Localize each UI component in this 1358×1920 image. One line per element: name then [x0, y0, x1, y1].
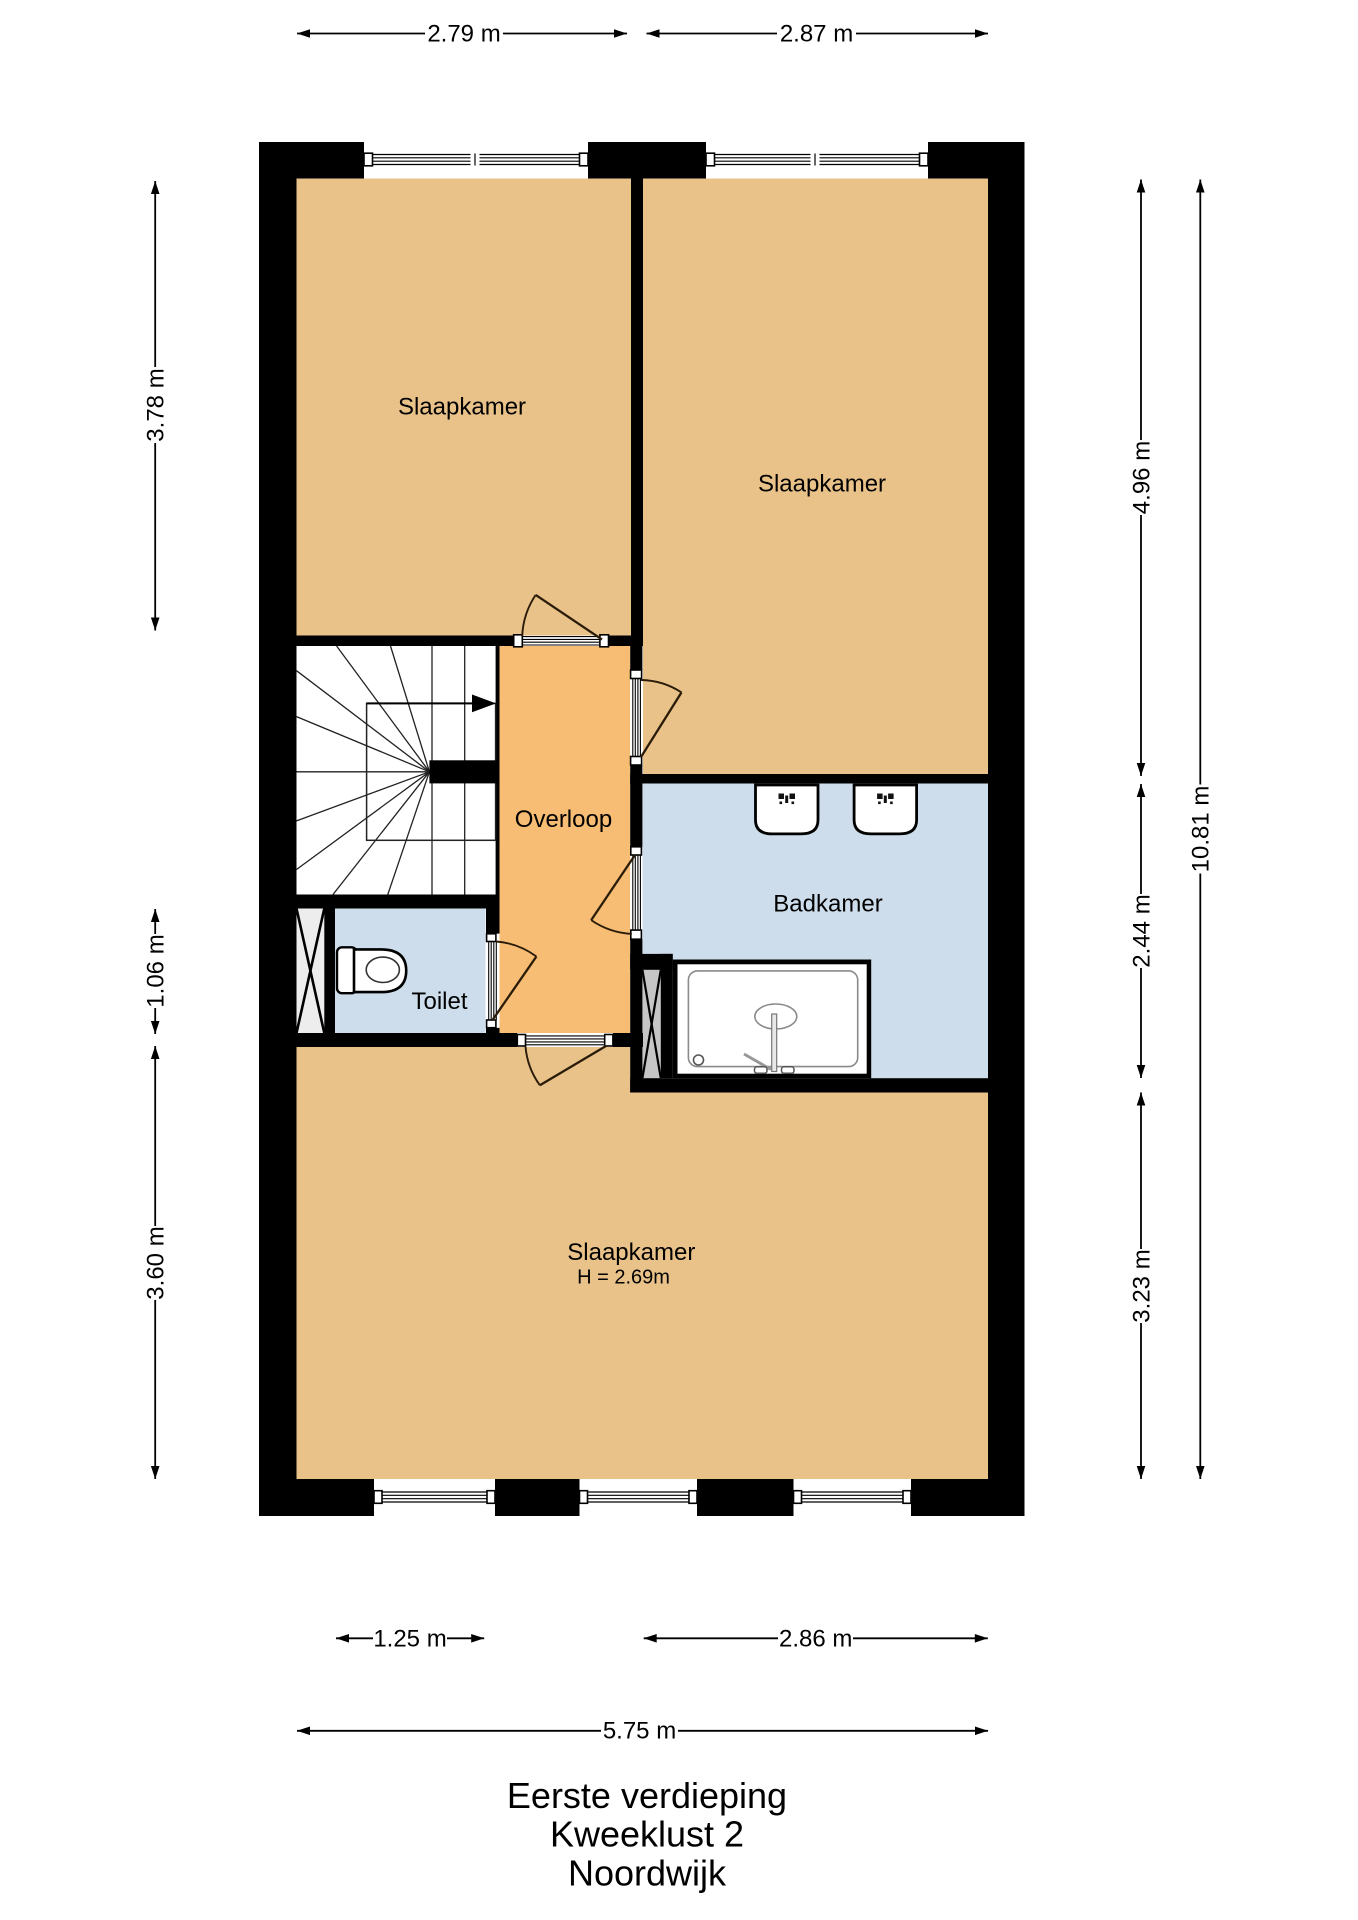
svg-text:Badkamer: Badkamer [773, 891, 882, 918]
svg-text:2.79 m: 2.79 m [427, 21, 500, 48]
svg-text:1.06 m: 1.06 m [143, 934, 170, 1007]
svg-text:2.87 m: 2.87 m [780, 21, 853, 48]
svg-text:1.25 m: 1.25 m [373, 1625, 446, 1652]
svg-text:Noordwijk: Noordwijk [568, 1853, 727, 1894]
svg-text:2.86 m: 2.86 m [779, 1625, 852, 1652]
svg-text:10.81 m: 10.81 m [1188, 786, 1215, 873]
svg-text:5.75 m: 5.75 m [603, 1718, 676, 1745]
svg-text:4.96 m: 4.96 m [1128, 441, 1155, 514]
svg-text:3.78 m: 3.78 m [143, 368, 170, 441]
svg-text:Overloop: Overloop [515, 806, 612, 833]
svg-text:3.23 m: 3.23 m [1128, 1249, 1155, 1322]
svg-text:Slaapkamer: Slaapkamer [398, 394, 526, 421]
svg-text:Slaapkamer: Slaapkamer [567, 1239, 695, 1266]
svg-text:3.60 m: 3.60 m [143, 1226, 170, 1299]
svg-text:Eerste verdieping: Eerste verdieping [507, 1775, 787, 1816]
svg-text:Slaapkamer: Slaapkamer [758, 471, 886, 498]
svg-text:H = 2.69m: H = 2.69m [577, 1267, 670, 1289]
svg-text:Toilet: Toilet [411, 988, 467, 1015]
svg-text:Kweeklust 2: Kweeklust 2 [550, 1814, 744, 1855]
svg-text:2.44 m: 2.44 m [1128, 894, 1155, 967]
